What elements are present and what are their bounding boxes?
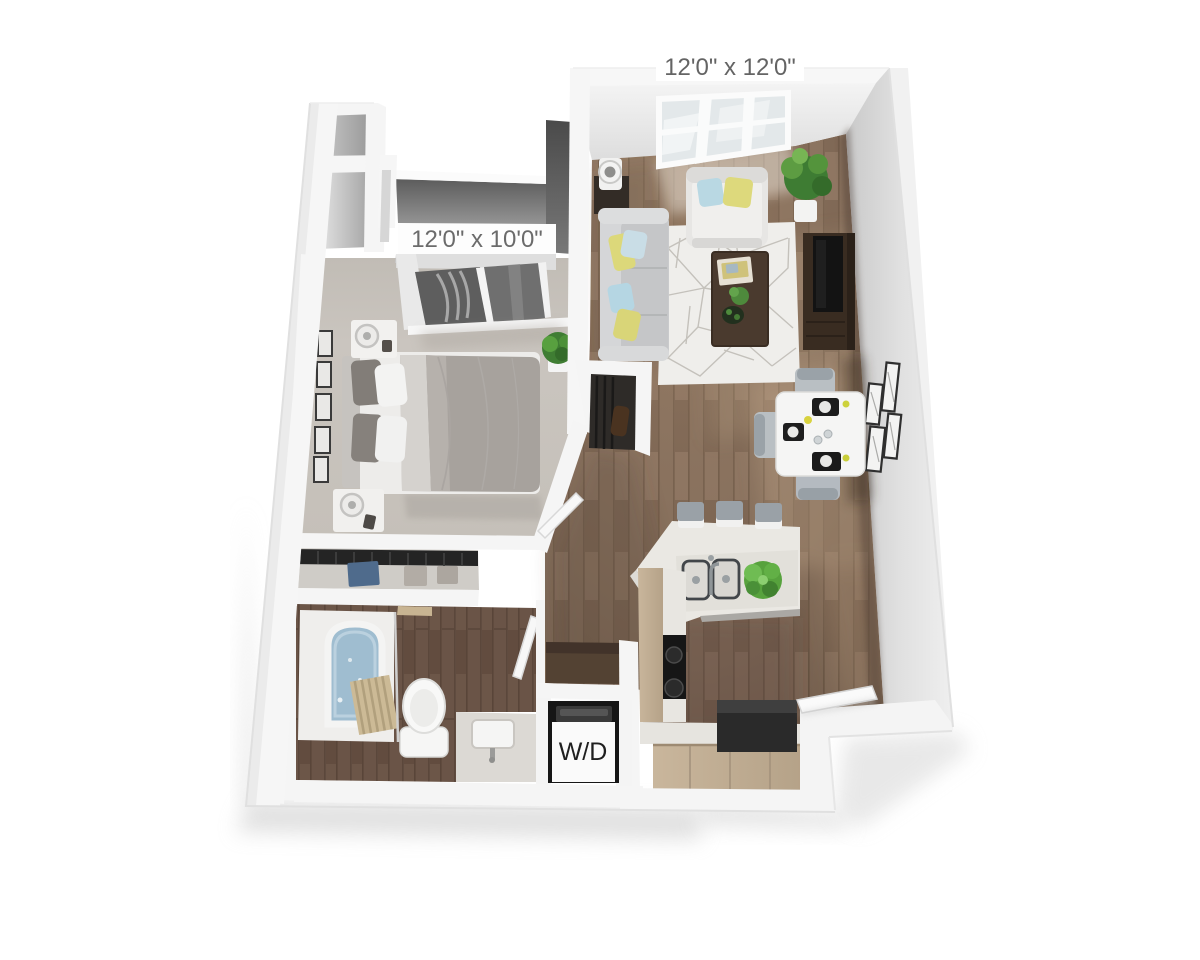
- svg-text:12'0" x 10'0": 12'0" x 10'0": [411, 226, 543, 253]
- svg-text:12'0" x 12'0": 12'0" x 12'0": [664, 54, 796, 81]
- svg-text:W/D: W/D: [559, 738, 608, 766]
